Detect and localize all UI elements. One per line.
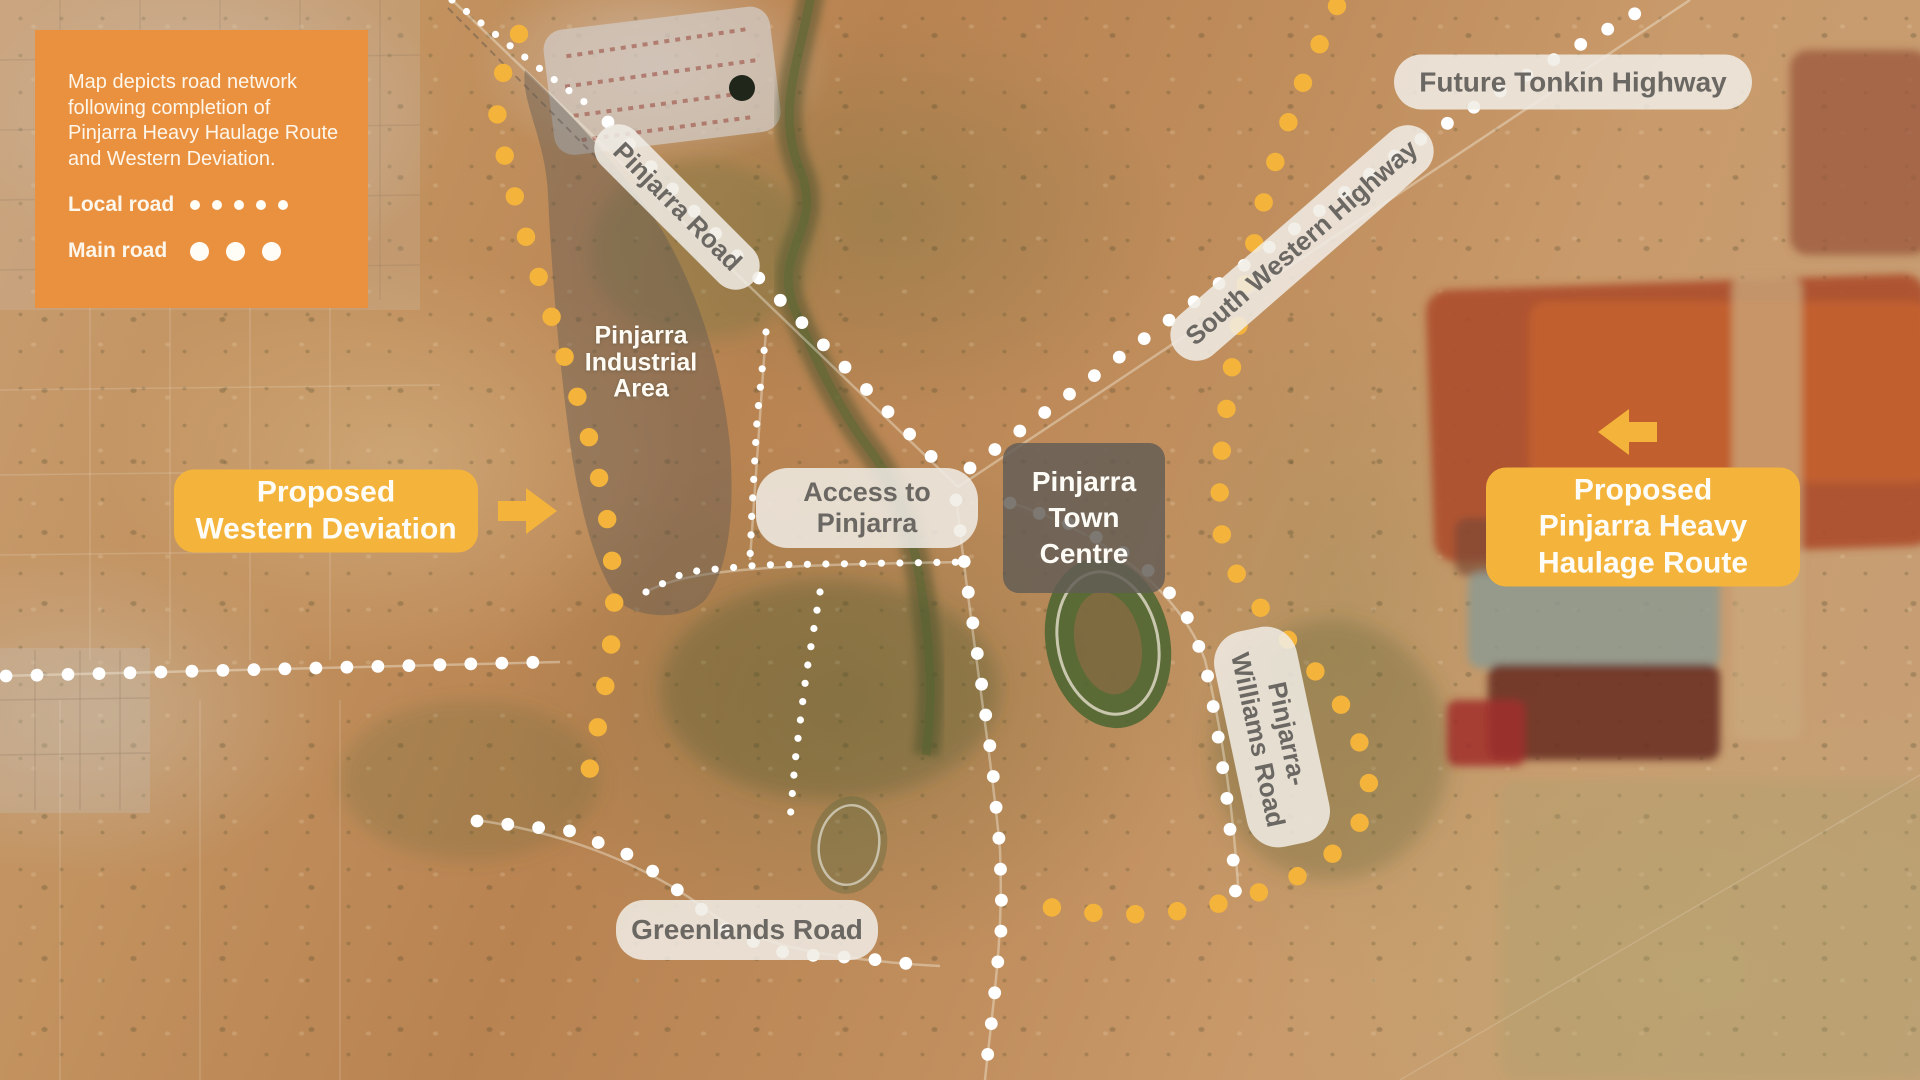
route-access-road <box>642 559 959 596</box>
arrow-right-icon <box>498 488 558 534</box>
access-line-1: Access to <box>803 477 931 508</box>
label-future-tonkin-highway: Future Tonkin Highway <box>1394 55 1752 110</box>
industrial-line-3: Area <box>585 375 698 402</box>
route-pinjarra-road-local-section <box>448 0 587 105</box>
legend-panel: Map depicts road network following compl… <box>35 30 368 308</box>
legend-main-road-label: Main road <box>68 239 190 263</box>
arrow-left-icon <box>1598 409 1658 455</box>
hh-line-1: Proposed <box>1574 472 1712 509</box>
label-greenlands-road-text: Greenlands Road <box>631 914 863 945</box>
hh-line-2: Pinjarra Heavy <box>1539 509 1747 546</box>
town-centre-line-2: Town <box>1048 500 1119 536</box>
callout-western-deviation: Proposed Western Deviation <box>174 470 478 553</box>
callout-heavy-haulage-route: Proposed Pinjarra Heavy Haulage Route <box>1486 468 1800 587</box>
wd-line-1: Proposed <box>257 474 395 511</box>
hh-line-3: Haulage Route <box>1538 545 1748 582</box>
town-centre-line-3: Centre <box>1040 536 1129 572</box>
town-centre-line-1: Pinjarra <box>1032 464 1136 500</box>
wd-line-2: Western Deviation <box>195 511 456 548</box>
access-line-2: Pinjarra <box>817 508 918 539</box>
route-west-road <box>0 656 539 683</box>
legend-main-road-dots <box>190 242 298 261</box>
label-industrial-area: Pinjarra Industrial Area <box>585 322 698 402</box>
legend-local-road-dots <box>190 200 300 210</box>
industrial-line-1: Pinjarra <box>585 322 698 349</box>
legend-main-road-row: Main road <box>68 238 340 264</box>
aerial-map: Future Tonkin Highway Pinjarra Road Sout… <box>0 0 1920 1080</box>
label-access-to-pinjarra: Access to Pinjarra <box>756 468 978 548</box>
industrial-line-2: Industrial <box>585 349 698 376</box>
legend-local-road-row: Local road <box>68 192 340 218</box>
label-town-centre: Pinjarra Town Centre <box>1003 443 1165 593</box>
legend-local-road-label: Local road <box>68 193 190 217</box>
route-south-western-highway-through-town <box>950 494 1008 1061</box>
label-greenlands-road: Greenlands Road <box>616 900 878 960</box>
route-town-south-local <box>787 588 824 815</box>
label-future-tonkin-highway-text: Future Tonkin Highway <box>1419 66 1726 97</box>
legend-note: Map depicts road network following compl… <box>68 70 340 172</box>
